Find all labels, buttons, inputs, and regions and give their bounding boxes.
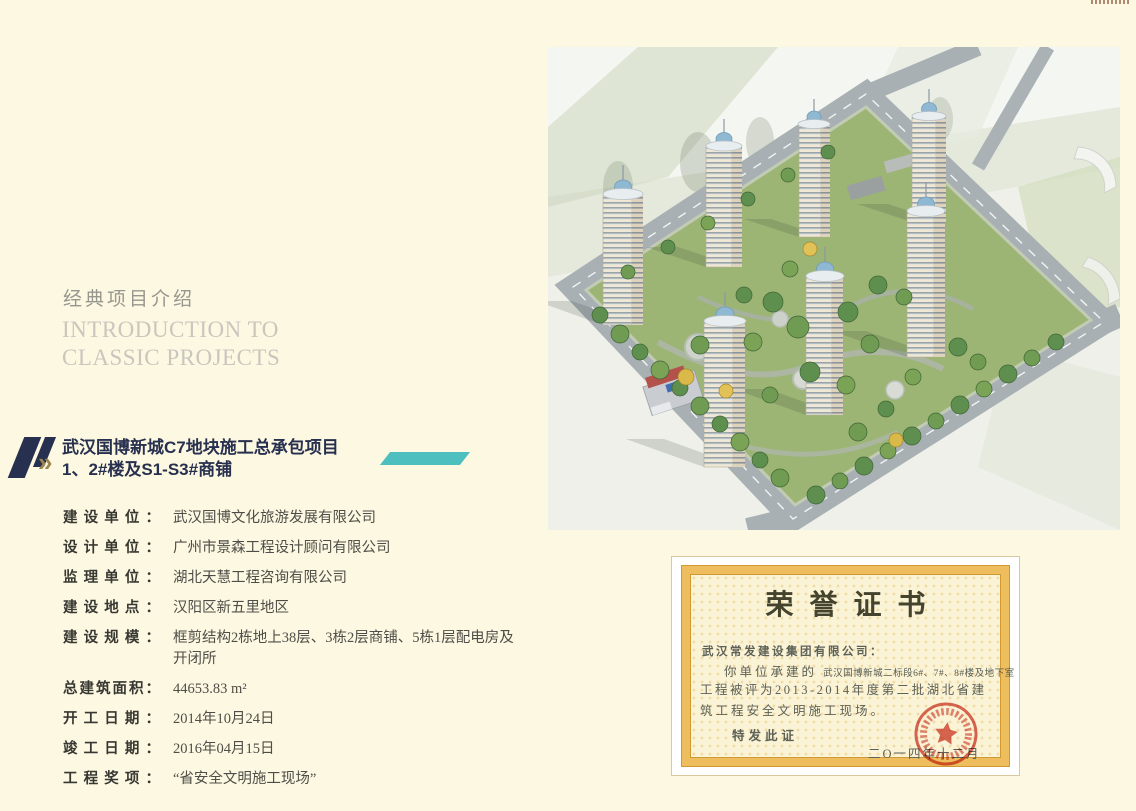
detail-label: 建设规模： — [63, 628, 160, 669]
detail-value: 框剪结构2栋地上38层、3栋2层商铺、5栋1层配电房及开闭所 — [173, 628, 521, 669]
section-title-en-line1: INTRODUCTION TO — [62, 316, 280, 344]
site-aerial-rendering-image — [548, 47, 1120, 530]
project-title-line1: 武汉国博新城C7地块施工总承包项目 — [62, 437, 339, 459]
table-row: 建设地点： 汉阳区新五里地区 — [63, 598, 523, 619]
certificate-award-line2: 筑工程安全文明施工现场。 — [700, 700, 886, 719]
cut-off-header-fragment — [1091, 0, 1131, 4]
detail-label: 监理单位： — [63, 568, 160, 589]
brochure-page: 经典项目介绍 INTRODUCTION TO CLASSIC PROJECTS … — [0, 0, 1136, 811]
detail-value: 2016年04月15日 — [173, 739, 521, 760]
double-chevron-icon: » — [38, 447, 46, 478]
detail-label: 建设地点： — [63, 598, 160, 619]
section-title-en-line2: CLASSIC PROJECTS — [62, 344, 280, 372]
detail-label: 开工日期： — [63, 709, 160, 730]
detail-value: 汉阳区新五里地区 — [173, 598, 521, 619]
table-row: 监理单位： 湖北天慧工程咨询有限公司 — [63, 568, 523, 589]
rendering-svg — [548, 47, 1120, 530]
teal-ribbon-decoration — [380, 452, 470, 465]
project-title-line2: 1、2#楼及S1-S3#商铺 — [62, 459, 339, 481]
table-row: 竣工日期： 2016年04月15日 — [63, 739, 523, 760]
detail-value: 2014年10月24日 — [173, 709, 521, 730]
certificate-body-intro: 你单位承建的 武汉国博新城二标段6#、7#、8#楼及地下室 — [724, 661, 1015, 680]
red-seal-stamp-icon — [903, 691, 989, 777]
detail-label: 设计单位： — [63, 538, 160, 559]
detail-label: 建设单位： — [63, 508, 160, 529]
section-title-en: INTRODUCTION TO CLASSIC PROJECTS — [62, 316, 280, 372]
table-row: 开工日期： 2014年10月24日 — [63, 709, 523, 730]
detail-label: 总建筑面积： — [63, 679, 160, 700]
table-row: 建设规模： 框剪结构2栋地上38层、3栋2层商铺、5栋1层配电房及开闭所 — [63, 628, 523, 669]
certificate-project-name: 武汉国博新城二标段6#、7#、8#楼及地下室 — [823, 669, 1015, 679]
detail-label: 竣工日期： — [63, 739, 160, 760]
certificate-issue-statement: 特发此证 — [732, 725, 798, 744]
table-row: 总建筑面积： 44653.83 m² — [63, 679, 523, 700]
detail-value: 湖北天慧工程咨询有限公司 — [173, 568, 521, 589]
detail-label: 工程奖项： — [63, 769, 160, 790]
detail-value: “省安全文明施工现场” — [173, 769, 521, 790]
honor-certificate-image: 荣誉证书 武汉常发建设集团有限公司： 你单位承建的 武汉国博新城二标段6#、7#… — [671, 556, 1020, 776]
detail-value: 武汉国博文化旅游发展有限公司 — [173, 508, 521, 529]
project-title-block: » 武汉国博新城C7地块施工总承包项目 1、2#楼及S1-S3#商铺 — [0, 435, 520, 485]
table-row: 工程奖项： “省安全文明施工现场” — [63, 769, 523, 790]
section-title-zh: 经典项目介绍 — [63, 284, 195, 311]
certificate-intro-text: 你单位承建的 — [724, 665, 817, 679]
certificate-title: 荣誉证书 — [672, 583, 1019, 623]
project-title: 武汉国博新城C7地块施工总承包项目 1、2#楼及S1-S3#商铺 — [62, 437, 339, 481]
detail-value: 广州市景森工程设计顾问有限公司 — [173, 538, 521, 559]
table-row: 建设单位： 武汉国博文化旅游发展有限公司 — [63, 508, 523, 529]
project-details-list: 建设单位： 武汉国博文化旅游发展有限公司 设计单位： 广州市景森工程设计顾问有限… — [63, 508, 523, 799]
table-row: 设计单位： 广州市景森工程设计顾问有限公司 — [63, 538, 523, 559]
certificate-recipient: 武汉常发建设集团有限公司： — [702, 643, 884, 659]
detail-value: 44653.83 m² — [173, 679, 521, 700]
